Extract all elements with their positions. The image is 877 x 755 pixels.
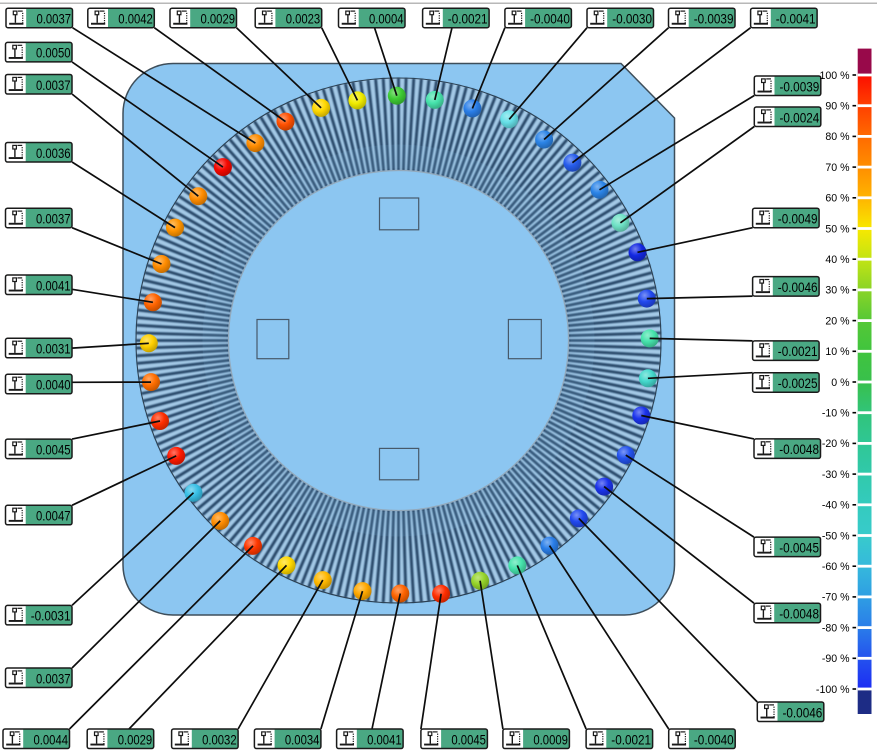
svg-text:0.0009: 0.0009 <box>533 732 568 747</box>
svg-text:-50 %: -50 % <box>822 530 850 542</box>
svg-text:-0.0031: -0.0031 <box>31 609 71 624</box>
svg-text:0.0034: 0.0034 <box>285 732 320 747</box>
svg-text:80 %: 80 % <box>825 131 850 143</box>
svg-text:10 %: 10 % <box>825 346 850 358</box>
svg-text:-0.0045: -0.0045 <box>779 540 819 555</box>
svg-text:50 %: 50 % <box>825 223 850 235</box>
svg-text:60 %: 60 % <box>825 193 850 205</box>
svg-text:40 %: 40 % <box>825 254 850 266</box>
svg-text:-0.0039: -0.0039 <box>694 12 734 27</box>
svg-text:30 %: 30 % <box>825 285 850 297</box>
svg-text:0.0037: 0.0037 <box>36 671 71 686</box>
svg-text:0.0032: 0.0032 <box>202 732 237 747</box>
svg-text:0.0045: 0.0045 <box>451 732 486 747</box>
svg-text:-20 %: -20 % <box>822 438 850 450</box>
svg-text:-0.0021: -0.0021 <box>778 344 818 359</box>
svg-text:-0.0049: -0.0049 <box>778 212 818 227</box>
svg-text:20 %: 20 % <box>825 315 850 327</box>
svg-text:0.0041: 0.0041 <box>367 732 402 747</box>
svg-text:0.0029: 0.0029 <box>118 732 153 747</box>
svg-text:0.0044: 0.0044 <box>34 732 69 747</box>
svg-text:90 %: 90 % <box>825 101 850 113</box>
svg-text:-10 %: -10 % <box>822 408 850 420</box>
svg-text:-0.0021: -0.0021 <box>611 732 651 747</box>
svg-text:-0.0039: -0.0039 <box>780 79 820 94</box>
svg-text:0.0042: 0.0042 <box>118 12 153 27</box>
svg-text:-0.0024: -0.0024 <box>780 110 820 125</box>
svg-text:-0.0041: -0.0041 <box>776 12 816 27</box>
svg-text:0.0040: 0.0040 <box>36 378 71 393</box>
svg-text:-80 %: -80 % <box>822 622 850 634</box>
svg-text:100 %: 100 % <box>819 70 850 82</box>
svg-text:-0.0030: -0.0030 <box>612 12 652 27</box>
svg-text:-0.0048: -0.0048 <box>779 442 819 457</box>
svg-text:-0.0046: -0.0046 <box>778 280 818 295</box>
svg-text:-30 %: -30 % <box>822 469 850 481</box>
svg-text:0.0050: 0.0050 <box>36 46 71 61</box>
svg-text:-70 %: -70 % <box>822 592 850 604</box>
svg-text:0.0036: 0.0036 <box>36 146 71 161</box>
svg-text:0.0004: 0.0004 <box>369 12 404 27</box>
svg-text:-0.0046: -0.0046 <box>783 705 823 720</box>
svg-text:-0.0025: -0.0025 <box>778 376 818 391</box>
svg-text:0.0045: 0.0045 <box>36 442 71 457</box>
svg-text:0.0029: 0.0029 <box>201 12 236 27</box>
svg-text:0.0047: 0.0047 <box>36 509 71 524</box>
svg-text:0.0037: 0.0037 <box>36 212 71 227</box>
svg-text:0.0041: 0.0041 <box>36 278 71 293</box>
svg-text:0.0037: 0.0037 <box>36 78 71 93</box>
svg-text:0.0023: 0.0023 <box>286 12 321 27</box>
svg-text:0 %: 0 % <box>831 377 850 389</box>
svg-text:0.0037: 0.0037 <box>37 12 72 27</box>
svg-text:-0.0048: -0.0048 <box>779 607 819 622</box>
svg-text:0.0031: 0.0031 <box>36 342 71 357</box>
svg-text:-0.0021: -0.0021 <box>448 12 488 27</box>
svg-text:-0.0040: -0.0040 <box>530 12 570 27</box>
svg-text:-40 %: -40 % <box>822 500 850 512</box>
svg-text:-100 %: -100 % <box>816 684 850 696</box>
svg-text:-60 %: -60 % <box>822 561 850 573</box>
svg-text:70 %: 70 % <box>825 162 850 174</box>
svg-text:-90 %: -90 % <box>822 653 850 665</box>
svg-text:-0.0040: -0.0040 <box>694 732 734 747</box>
